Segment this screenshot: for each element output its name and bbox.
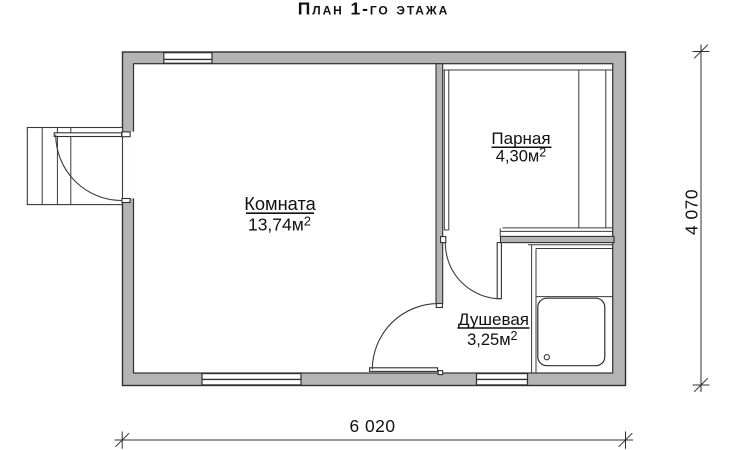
svg-text:13,74м2: 13,74м2 <box>248 213 311 234</box>
svg-text:4 070: 4 070 <box>682 189 702 235</box>
svg-text:6 020: 6 020 <box>349 416 395 436</box>
svg-text:Душевая: Душевая <box>458 310 529 329</box>
svg-text:План 1-го этажа: План 1-го этажа <box>298 0 449 19</box>
svg-text:Комната: Комната <box>244 193 316 214</box>
svg-text:4,30м2: 4,30м2 <box>496 146 546 166</box>
svg-text:3,25м2: 3,25м2 <box>467 329 517 349</box>
